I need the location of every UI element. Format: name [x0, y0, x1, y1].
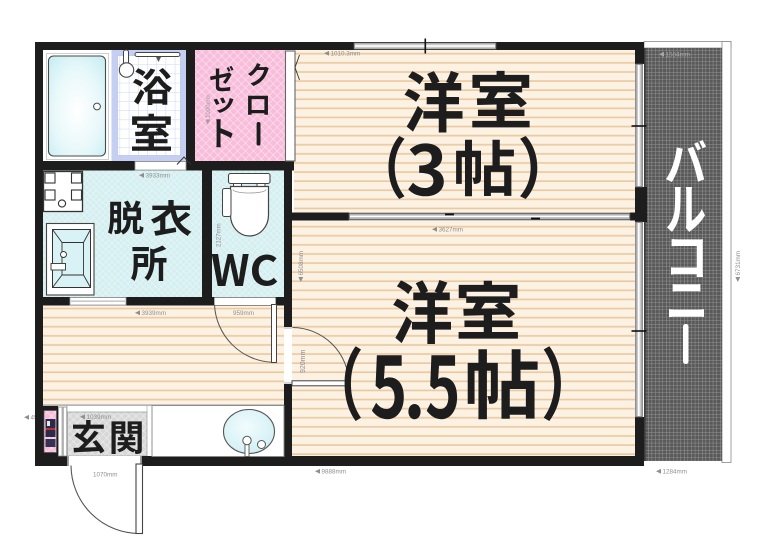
svg-text:3933mm: 3933mm — [146, 173, 171, 180]
svg-text:1010.3mm: 1010.3mm — [331, 51, 361, 58]
svg-text:1070mm: 1070mm — [93, 472, 118, 479]
svg-text:6508mm: 6508mm — [298, 251, 305, 276]
svg-text:1090mm: 1090mm — [205, 94, 212, 118]
svg-text:959mm: 959mm — [233, 310, 254, 317]
svg-text:3627mm: 3627mm — [439, 227, 464, 234]
svg-text:1584mm: 1584mm — [666, 52, 691, 59]
svg-text:3939mm: 3939mm — [142, 310, 167, 317]
svg-text:9888mm: 9888mm — [322, 469, 347, 476]
svg-text:2127mm: 2127mm — [216, 223, 223, 247]
svg-text:920mm: 920mm — [300, 349, 307, 373]
svg-text:1039mm: 1039mm — [87, 414, 112, 421]
svg-text:6731mm: 6731mm — [735, 251, 742, 276]
svg-text:1284mm: 1284mm — [663, 469, 688, 476]
